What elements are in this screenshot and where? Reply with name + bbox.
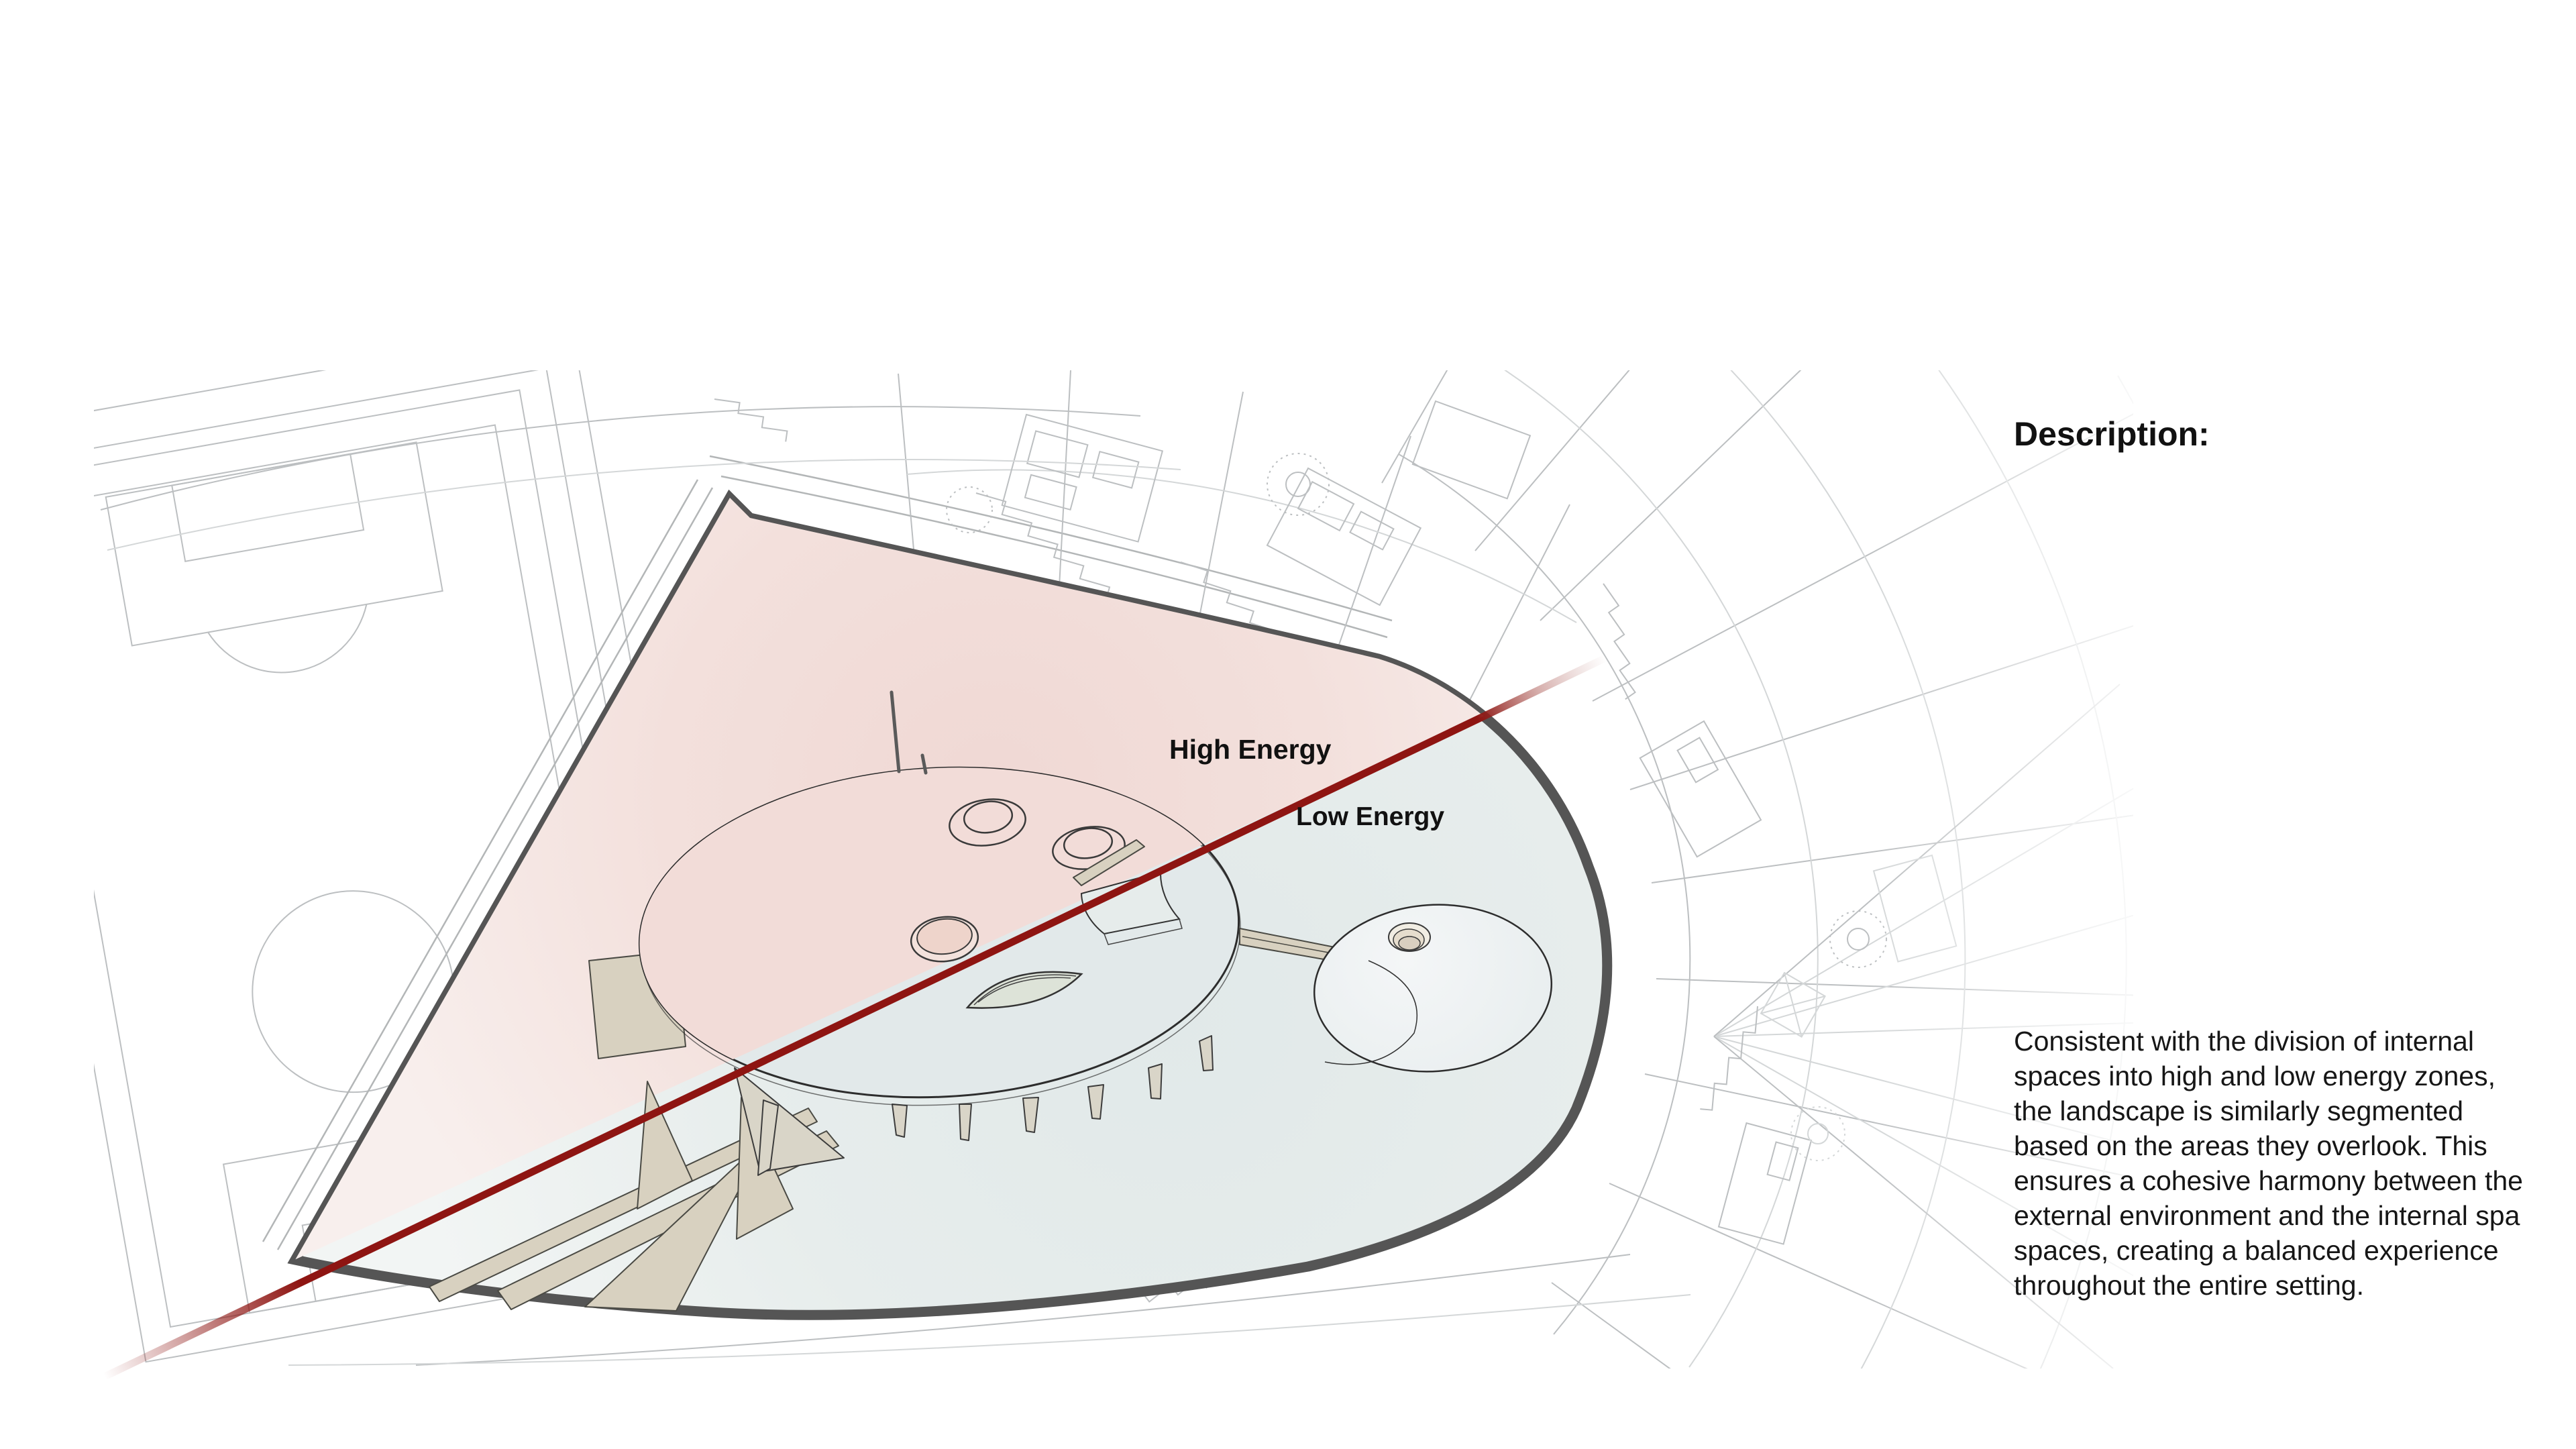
funnel-skylight-inner xyxy=(1399,936,1420,950)
description-heading: Description: xyxy=(2014,415,2210,453)
description-body: Consistent with the division of internal… xyxy=(2014,1024,2538,1303)
site-plan-page: High Energy Low Energy Description: Cons… xyxy=(0,0,2576,1449)
low-energy-label: Low Energy xyxy=(1296,802,1444,832)
high-energy-label: High Energy xyxy=(1169,734,1331,765)
